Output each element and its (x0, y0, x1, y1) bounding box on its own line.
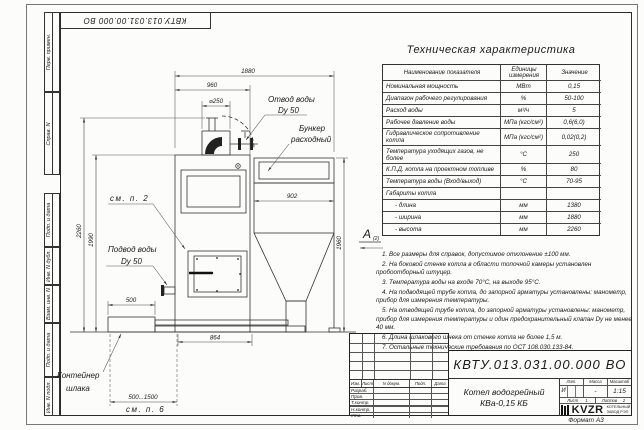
row-value (547, 188, 601, 200)
sheets-total: 2 (623, 398, 625, 403)
format-note: Формат А3 (540, 417, 632, 424)
callout-labels: Отвод воды Dy 50 Бункер расходный Подвод… (57, 95, 332, 414)
sheet-label: Лист (567, 398, 578, 403)
row-name: Гидравлическое сопротивление котла (383, 129, 501, 147)
note-2: 2. На боковой стенке котла в области топ… (376, 261, 632, 278)
row-value: 1880 (547, 212, 601, 224)
dim-hopper-width: 902 (287, 193, 298, 200)
dim-hopper-height: 1960 (336, 236, 343, 250)
row-units: МВт (501, 81, 547, 93)
row-name: Температура уходящих газов, не более (383, 146, 501, 164)
col-header-units: Единицы измерения (501, 65, 547, 81)
slag-container-label: Контейнер (57, 371, 100, 380)
row-units: МПа (кгс/см²) (501, 117, 547, 129)
water-inlet-dn: Dy 50 (121, 257, 142, 266)
company-line-2: ЗАВОД РЭП (607, 410, 631, 415)
row-value: 70-95 (547, 176, 601, 188)
row-name: Габариты котла (383, 188, 501, 200)
company-name: КОТЕЛЬНЫЙ ЗАВОД РЭП (607, 405, 631, 414)
sheet-number: 1 (585, 398, 587, 403)
row-value: 0,6(6,0) (547, 117, 601, 129)
sign-prov: Пров. (350, 394, 374, 399)
hdr-list: Лист (362, 380, 374, 387)
note-1: 1. Все размеры для справок, допустимое о… (376, 251, 632, 259)
tech-table: Наименование показателя Единицы измерени… (382, 64, 600, 236)
company-logo-cell: KVZR КОТЕЛЬНЫЙ ЗАВОД РЭП (560, 404, 631, 416)
ash-screw-conveyor (155, 320, 305, 332)
water-inlet-stub (161, 285, 175, 296)
row-units: % (501, 164, 547, 176)
row-name: Диапазон рабочего регулирования (383, 93, 501, 105)
col-header-value: Значение (547, 65, 601, 81)
dim-container-travel: 500...1500 (128, 394, 158, 401)
water-inlet-label: Подвод воды (108, 245, 157, 254)
lit-mass-scale-values: И - 1:15 (560, 386, 631, 398)
dim-boiler-height: 1990 (88, 233, 95, 247)
chimney-outlet (202, 116, 254, 155)
lit-value: И (560, 386, 568, 397)
note-4: 4. На подводящей трубе котла, до запорно… (376, 289, 632, 306)
row-value: 250 (547, 146, 601, 164)
row-name: Расход воды (383, 105, 501, 117)
row-units (501, 188, 547, 200)
change-log-grid (350, 334, 448, 380)
row-units: м³/ч (501, 105, 547, 117)
row-value: 80 (547, 164, 601, 176)
row-name: Рабочее давление воды (383, 117, 501, 129)
row-name: Номинальная мощность (383, 81, 501, 93)
dim-boiler-depth: 960 (207, 82, 218, 89)
dim-container-width: 500 (126, 297, 137, 304)
kvzr-logo-text: KVZR (572, 404, 604, 416)
see-item-6-label: см. п. 6 (126, 405, 165, 414)
view-a-ref: (2) (373, 236, 379, 242)
mass-value: - (584, 386, 608, 397)
scale-header: Масштаб (608, 379, 631, 385)
hdr-data: Дата (432, 380, 448, 387)
change-header-row: Изм. Лист N докум. Подп. Дата (350, 380, 448, 388)
sign-tkontr: Т.контр. (350, 400, 374, 405)
dimensions: 1880 960 ⌀250 2260 1990 1960 902 500 (76, 68, 348, 406)
lit-header: Лит. (560, 379, 584, 385)
mass-header: Масса (584, 379, 608, 385)
dim-overall-height: 2260 (76, 224, 83, 239)
row-units: % (501, 93, 547, 105)
dim-chimney-diameter: ⌀250 (209, 98, 224, 105)
row-name: Температура воды (Вход/выход) (383, 176, 501, 188)
row-value: 5 (547, 105, 601, 117)
view-a-letter: А (362, 227, 371, 241)
row-units: мм (501, 224, 547, 235)
kvzr-logo-icon (561, 405, 569, 415)
title-block-left: Изм. Лист N докум. Подп. Дата Разраб. Пр… (349, 333, 449, 416)
document-number: КВТУ.013.031.00.000 ВО (449, 351, 631, 379)
water-outlet-dn: Dy 50 (278, 106, 299, 115)
slag-container-outline (108, 317, 155, 332)
hdr-podp: Подп. (410, 380, 432, 387)
sign-nkontr: Н.контр. (350, 407, 374, 412)
see-item-2-label: см. п. 2 (110, 194, 149, 203)
row-name: - длина (383, 200, 501, 212)
slag-container-label-2: шлака (66, 384, 90, 393)
row-name: - высота (383, 224, 501, 235)
row-value: 0,02(0,2) (547, 129, 601, 147)
drawing-sheet: КВТУ.013.031.00.000 ВО Перв. примен. Спр… (0, 0, 644, 430)
title-block-right: КВТУ.013.031.00.000 ВО Котел водогрейный… (448, 350, 632, 416)
scale-value: 1:15 (608, 386, 631, 397)
hdr-ndokum: N докум. (374, 380, 410, 387)
row-value: 1380 (547, 200, 601, 212)
sheets-label: Листов (602, 398, 617, 403)
hopper-label: Бункер (299, 124, 326, 133)
note-5: 5. На отводящей трубе котла, до запорной… (376, 307, 632, 332)
row-name: К.П.Д. котла на проектном топливе (383, 164, 501, 176)
hdr-izm: Изм. (350, 380, 362, 387)
sign-utv: Утв. (350, 413, 374, 418)
row-value: 0,15 (547, 81, 601, 93)
tech-table-title: Техническая характеристика (382, 44, 600, 56)
row-units: °С (501, 176, 547, 188)
note-3: 3. Температура воды на входе 70°С, на вы… (376, 279, 632, 287)
row-name: - ширина (383, 212, 501, 224)
signature-rows: Разраб. Пров. Т.контр. Н.контр. Утв. (350, 388, 448, 417)
row-units: мм (501, 200, 547, 212)
row-units: мм (501, 212, 547, 224)
product-name: Котел водогрейный КВа-0,15 КБ (449, 379, 560, 416)
row-value: 2260 (547, 224, 601, 235)
col-header-name: Наименование показателя (383, 65, 501, 81)
row-value: 50-100 (547, 93, 601, 105)
water-outlet-label: Отвод воды (268, 95, 315, 104)
dim-overall-width: 1880 (241, 68, 255, 75)
fuel-hopper-outline (254, 158, 340, 332)
dim-screw-length: 864 (210, 335, 221, 342)
boiler-body-outline (175, 155, 250, 332)
view-a-marker: А (2) (359, 227, 383, 248)
row-units: °С (501, 146, 547, 164)
hopper-label-2: расходный (290, 135, 332, 144)
sign-razrab: Разраб. (350, 388, 374, 393)
row-units: МПа (кгс/см²) (501, 129, 547, 147)
